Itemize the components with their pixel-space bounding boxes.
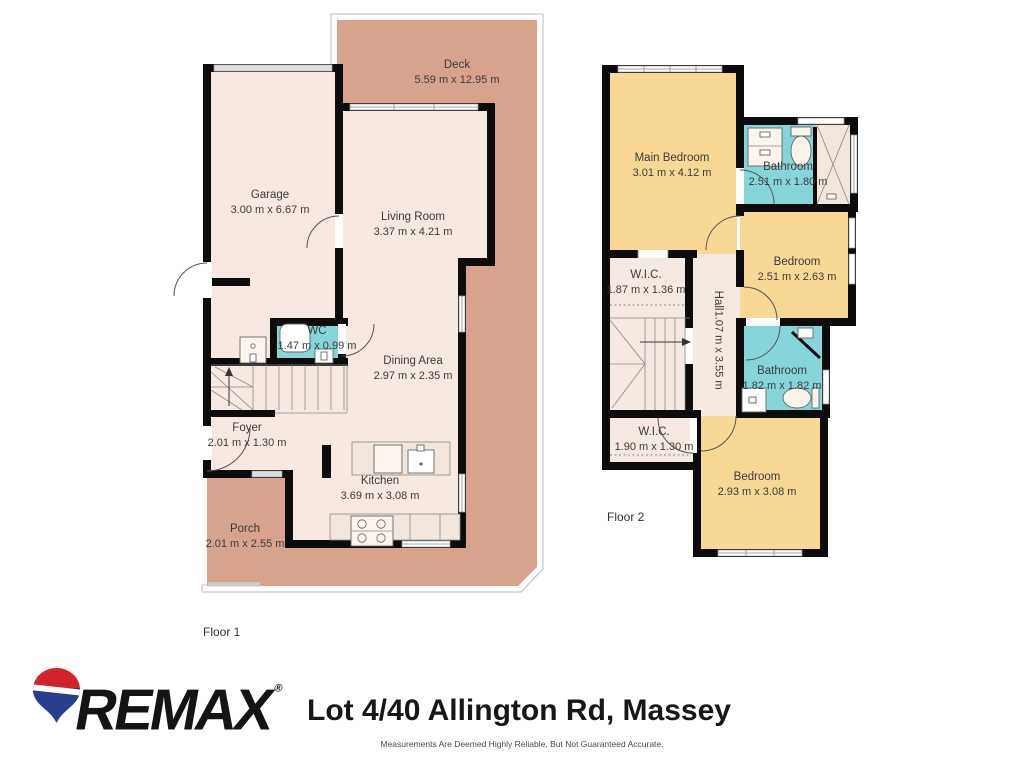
floor2-label: Floor 2 [607,510,644,524]
sink-icon [408,450,434,473]
room-label-bathroom-top: Bathroom 2.51 m x 1.80 m [749,160,828,190]
porch-entry-door [252,471,282,477]
bathroom-top-window [798,118,844,124]
room-label-foyer: Foyer 2.01 m x 1.30 m [208,421,287,451]
living-window [350,104,478,110]
page-title: Lot 4/40 Allington Rd, Massey [307,694,731,728]
room-label-porch: Porch 2.01 m x 2.55 m [206,522,285,552]
room-label-garage: Garage 3.00 m x 6.67 m [231,188,310,218]
porch-edge [208,582,260,587]
room-label-living: Living Room 3.37 m x 4.21 m [374,210,453,240]
room-label-kitchen: Kitchen 3.69 m x 3.08 m [341,474,420,504]
floor1-plan [174,14,543,592]
dishwasher-icon [374,445,402,473]
room-label-wic-mid: W.I.C. 1.87 m x 1.36 m [607,268,686,298]
garage-floor [207,68,339,280]
main-bedroom-window [618,66,722,72]
kitchen-counter [330,514,460,540]
room-label-bedroom-right: Bedroom 2.51 m x 2.63 m [758,255,837,285]
bathroom-lower-window [823,370,829,404]
room-label-hall: Hall 1.07 m x 3.55 m [710,291,726,390]
bedroom-lower-window [718,550,802,556]
remax-logo-text: REMAX® [70,677,284,744]
floorplan-page: Deck 5.59 m x 12.95 m Garage 3.00 m x 6.… [0,0,1024,768]
kitchen-window [402,541,450,547]
room-label-bathroom-lower: Bathroom 1.82 m x 1.82 m [743,364,822,394]
room-label-main-bedroom: Main Bedroom 3.01 m x 4.12 m [633,151,712,181]
room-label-dining: Dining Area 2.97 m x 2.35 m [374,354,453,384]
toilet-icon [791,127,811,136]
room-label-deck: Deck 5.59 m x 12.95 m [415,58,500,88]
room-label-bedroom-lower: Bedroom 2.93 m x 3.08 m [718,470,797,500]
room-label-wic-lower: W.I.C. 1.90 m x 1.30 m [615,425,694,455]
floor1-label: Floor 1 [203,625,240,639]
garage-door [214,65,332,71]
room-label-wc: WC 1.47 m x 0.99 m [278,324,357,354]
shower-window [851,135,857,193]
disclaimer-text: Measurements Are Deemed Highly Reliable,… [380,739,663,749]
laundry-fixture [240,337,266,363]
floorplan-canvas [0,0,1024,768]
